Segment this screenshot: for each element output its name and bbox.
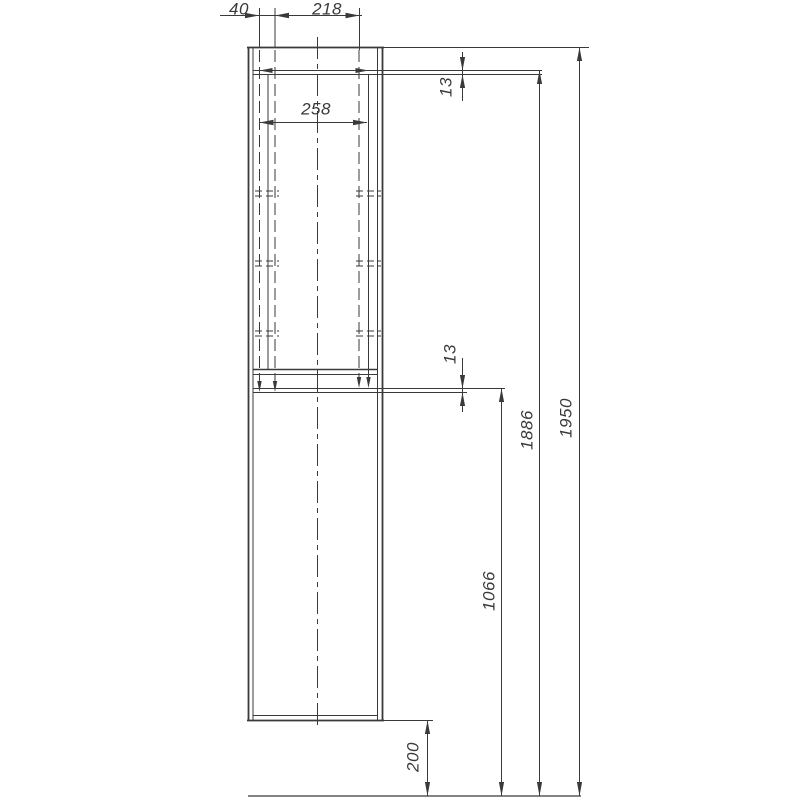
dim-label-bottom-clearance: 200 bbox=[405, 742, 422, 772]
drawing-linework bbox=[0, 0, 800, 800]
dim-label-top-depth: 218 bbox=[312, 1, 342, 18]
dimension-arrowheads bbox=[245, 13, 582, 796]
cabinet-interior-lines bbox=[253, 50, 542, 393]
dim-label-height-to-top-shelf: 1886 bbox=[519, 410, 536, 450]
technical-drawing-canvas: 40 218 258 13 13 1066 1886 1950 200 bbox=[0, 0, 800, 800]
dim-label-top-panel-thickness: 13 bbox=[438, 77, 455, 97]
dim-label-niche-depth: 258 bbox=[301, 101, 331, 118]
dim-label-shelf-thickness: 13 bbox=[442, 344, 459, 364]
dim-label-door-section-height: 1066 bbox=[481, 571, 498, 611]
dim-label-top-setback: 40 bbox=[229, 1, 249, 18]
dim-label-total-height: 1950 bbox=[558, 398, 575, 438]
